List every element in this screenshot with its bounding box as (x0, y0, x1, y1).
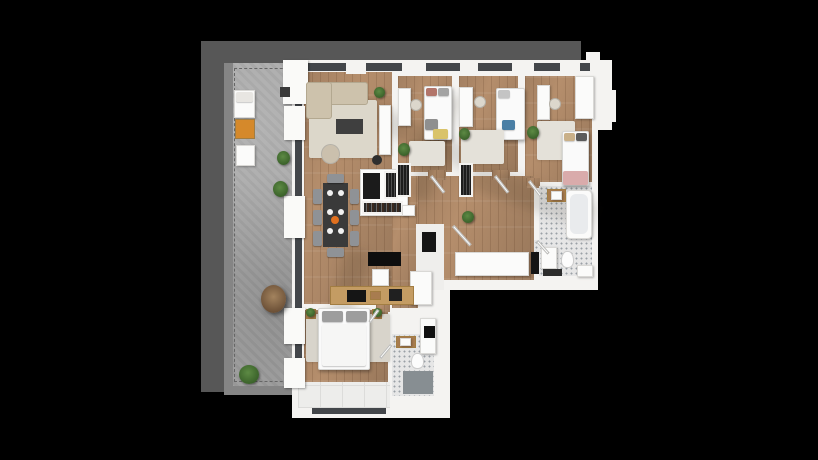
toilet (561, 251, 574, 268)
dining-chair-top (327, 174, 344, 183)
dining-chair-l3 (313, 231, 322, 246)
bath-washer (577, 265, 593, 277)
floor-lamp (372, 155, 382, 165)
bedroom1-pillow-1 (426, 88, 437, 96)
cutting-board (370, 291, 381, 300)
bedroom2-pillow-1 (498, 90, 510, 98)
bedroom2-pillow-blue (502, 120, 515, 130)
bath-sink (551, 191, 562, 200)
dining-chair-l1 (313, 189, 322, 204)
lounger-1-cushion (236, 92, 253, 102)
plate-5 (327, 228, 333, 234)
stair-shaft-top-step (586, 52, 600, 62)
shower (403, 371, 433, 394)
terrace-speaker (280, 87, 290, 97)
bedroom3-blanket (563, 171, 588, 185)
window-pier-n4 (512, 60, 534, 74)
bedroom3-plant (527, 126, 539, 139)
hallway-plant (462, 211, 474, 223)
bedroom1-wardrobe (396, 163, 411, 197)
bedroom3-pillow-1 (564, 133, 575, 141)
bedroom1-pillow-2 (438, 88, 449, 96)
bedroom4-plant-left (306, 308, 315, 317)
bedroom4-duvet (322, 324, 366, 366)
terrace-plant-1 (277, 151, 290, 165)
sideboard (379, 105, 391, 155)
kitchen-shelf (362, 201, 403, 214)
window-pier-w1 (284, 106, 305, 140)
dining-chair-bottom (327, 248, 344, 257)
window-pier-w0 (283, 60, 308, 104)
living-plant (374, 87, 385, 98)
fruit-bowl (331, 216, 339, 224)
bedroom2-chair (474, 96, 486, 108)
dining-chair-r3 (350, 231, 359, 246)
window-pier-w3 (284, 308, 305, 344)
dining-chair-r1 (350, 189, 359, 204)
kitchen-sink (389, 289, 402, 301)
window-pier-w2 (284, 196, 305, 238)
bathroom2-niche (424, 326, 435, 338)
plate-6 (338, 228, 344, 234)
stair-shaft-step (604, 90, 616, 122)
bedroom4-pillow-2 (346, 311, 367, 322)
window-strip-south (312, 408, 386, 414)
lounger-2 (236, 145, 255, 166)
washing-machine (372, 269, 389, 286)
bathroom2-sink (400, 338, 411, 346)
bedroom2-desk (459, 87, 473, 127)
terrace-plant-2 (273, 181, 288, 197)
window-pier-n1 (346, 60, 366, 74)
fridge (363, 173, 380, 199)
terrace-plant-3 (239, 365, 259, 384)
plate-1 (327, 190, 333, 196)
coffee-table (336, 119, 363, 134)
entry-niche (422, 232, 436, 252)
bedroom1-rug (409, 141, 445, 166)
bathroom2-toilet (411, 353, 424, 369)
window-pier-w4 (284, 358, 305, 388)
bedroom2-wardrobe (459, 163, 473, 197)
plate-4 (338, 209, 344, 215)
window-pier-n5 (560, 60, 580, 74)
bedroom1-plant (398, 143, 410, 156)
dining-chair-l2 (313, 210, 322, 225)
dining-chair-r2 (350, 210, 359, 225)
bedroom1-throw-yellow (433, 129, 448, 139)
window-pier-n3 (460, 60, 478, 74)
window-strip-north (300, 63, 590, 71)
bath-mat (543, 269, 562, 276)
patio-tiles (298, 382, 390, 408)
sofa-chaise (306, 82, 332, 119)
bedroom2-plant (459, 128, 470, 140)
cooktop (347, 290, 366, 302)
tv (368, 252, 401, 266)
bathtub-inner (570, 194, 588, 234)
bedroom1-desk (398, 88, 411, 126)
bedroom3-pillow-2 (576, 133, 587, 141)
bedroom3-wardrobe (575, 76, 594, 119)
window-pier-n2 (402, 60, 426, 74)
terrace-table (235, 119, 255, 139)
plate-3 (327, 209, 333, 215)
plate-2 (338, 190, 344, 196)
floor-plan (0, 0, 818, 460)
kitchen-appliance (402, 205, 415, 216)
entry-cabinets (455, 252, 529, 276)
armchair (321, 144, 340, 164)
hanging-chair (261, 285, 286, 313)
terrace-rail-left (224, 63, 233, 395)
entry-dark-opening (531, 252, 539, 274)
bedroom4-pillow-1 (322, 311, 343, 322)
bedroom3-chair (549, 98, 561, 110)
bedroom1-chair (410, 99, 422, 111)
